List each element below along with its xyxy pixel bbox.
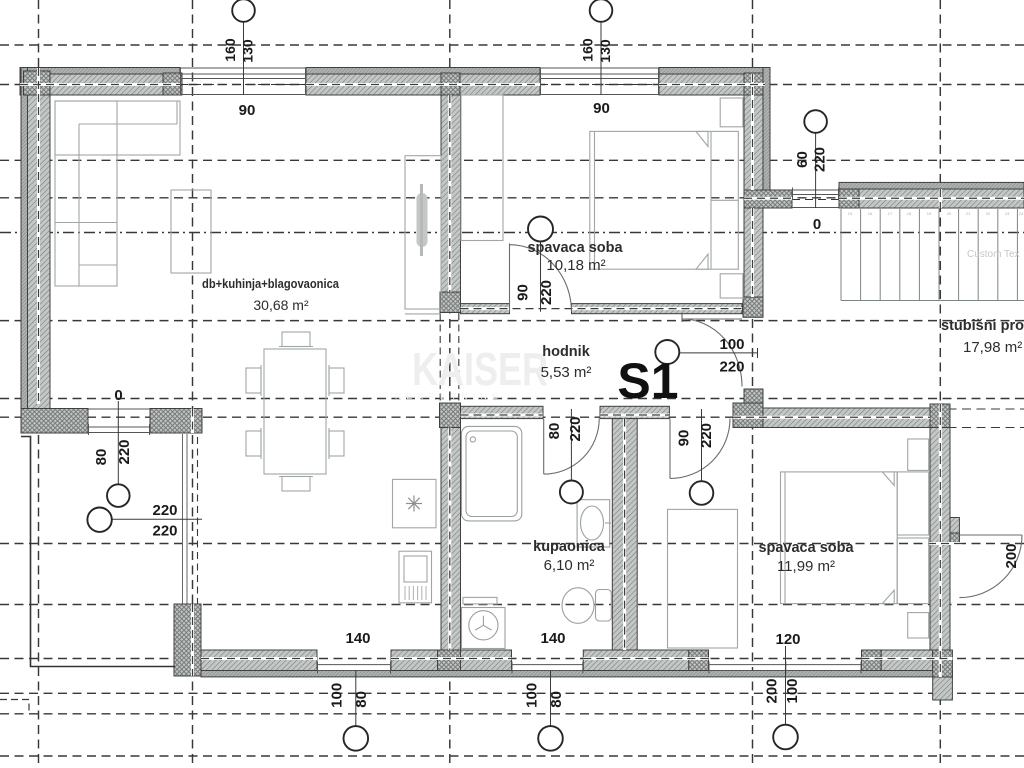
- svg-text:160: 160: [222, 38, 238, 62]
- svg-text:200: 200: [1003, 543, 1020, 568]
- svg-text:200: 200: [764, 678, 781, 703]
- svg-text:18: 18: [907, 211, 912, 216]
- svg-text:220: 220: [538, 280, 555, 305]
- svg-text:spavaca soba: spavaca soba: [527, 240, 623, 256]
- svg-text:22: 22: [986, 211, 991, 216]
- svg-text:S1: S1: [617, 353, 678, 409]
- svg-text:0: 0: [114, 387, 122, 404]
- svg-text:60: 60: [794, 151, 811, 168]
- svg-text:10,18 m²: 10,18 m²: [546, 257, 605, 274]
- svg-text:15: 15: [848, 211, 853, 216]
- svg-text:220: 220: [152, 523, 177, 540]
- svg-text:80: 80: [548, 691, 565, 708]
- svg-text:130: 130: [240, 39, 256, 63]
- svg-text:17,98 m²: 17,98 m²: [963, 339, 1022, 356]
- svg-text:100: 100: [524, 683, 541, 708]
- svg-text:stubišni prostor: stubišni prostor: [941, 318, 1024, 334]
- svg-text:140: 140: [345, 630, 370, 647]
- svg-text:100: 100: [329, 683, 346, 708]
- svg-text:220: 220: [567, 416, 584, 441]
- svg-text:100: 100: [719, 336, 744, 353]
- svg-text:spavaca soba: spavaca soba: [758, 540, 854, 556]
- svg-text:90: 90: [676, 430, 693, 447]
- svg-text:0: 0: [813, 216, 821, 233]
- svg-text:220: 220: [116, 439, 133, 464]
- svg-text:21: 21: [966, 211, 971, 216]
- svg-text:N E K R E T N I N E: N E K R E T N I N E: [395, 391, 499, 401]
- svg-text:220: 220: [152, 502, 177, 519]
- svg-text:90: 90: [239, 102, 256, 119]
- svg-text:100: 100: [784, 678, 801, 703]
- svg-text:6,10 m²: 6,10 m²: [544, 557, 595, 574]
- svg-text:30,68 m²: 30,68 m²: [253, 297, 309, 313]
- svg-text:140: 140: [540, 630, 565, 647]
- svg-text:220: 220: [698, 423, 715, 448]
- svg-text:db+kuhinja+blagovaonica: db+kuhinja+blagovaonica: [202, 276, 340, 291]
- svg-text:120: 120: [775, 631, 800, 648]
- svg-text:Custom Tex: Custom Tex: [967, 249, 1020, 260]
- svg-text:11,99 m²: 11,99 m²: [777, 558, 835, 575]
- svg-text:220: 220: [719, 359, 744, 376]
- svg-text:23: 23: [1005, 211, 1010, 216]
- svg-text:kupaonica: kupaonica: [533, 539, 606, 555]
- svg-text:80: 80: [546, 423, 563, 440]
- svg-text:hodnik: hodnik: [542, 344, 590, 360]
- svg-text:KAISER: KAISER: [412, 343, 548, 395]
- svg-text:130: 130: [597, 39, 613, 63]
- svg-text:24: 24: [1019, 211, 1024, 216]
- svg-text:90: 90: [593, 100, 610, 117]
- svg-text:19: 19: [927, 211, 932, 216]
- svg-text:90: 90: [515, 284, 532, 301]
- svg-text:20: 20: [947, 211, 952, 216]
- svg-text:80: 80: [353, 691, 370, 708]
- svg-text:17: 17: [888, 211, 893, 216]
- svg-text:5,53 m²: 5,53 m²: [541, 364, 592, 381]
- svg-text:80: 80: [93, 449, 110, 466]
- svg-text:220: 220: [812, 147, 829, 172]
- svg-text:16: 16: [868, 211, 873, 216]
- svg-text:160: 160: [580, 38, 596, 62]
